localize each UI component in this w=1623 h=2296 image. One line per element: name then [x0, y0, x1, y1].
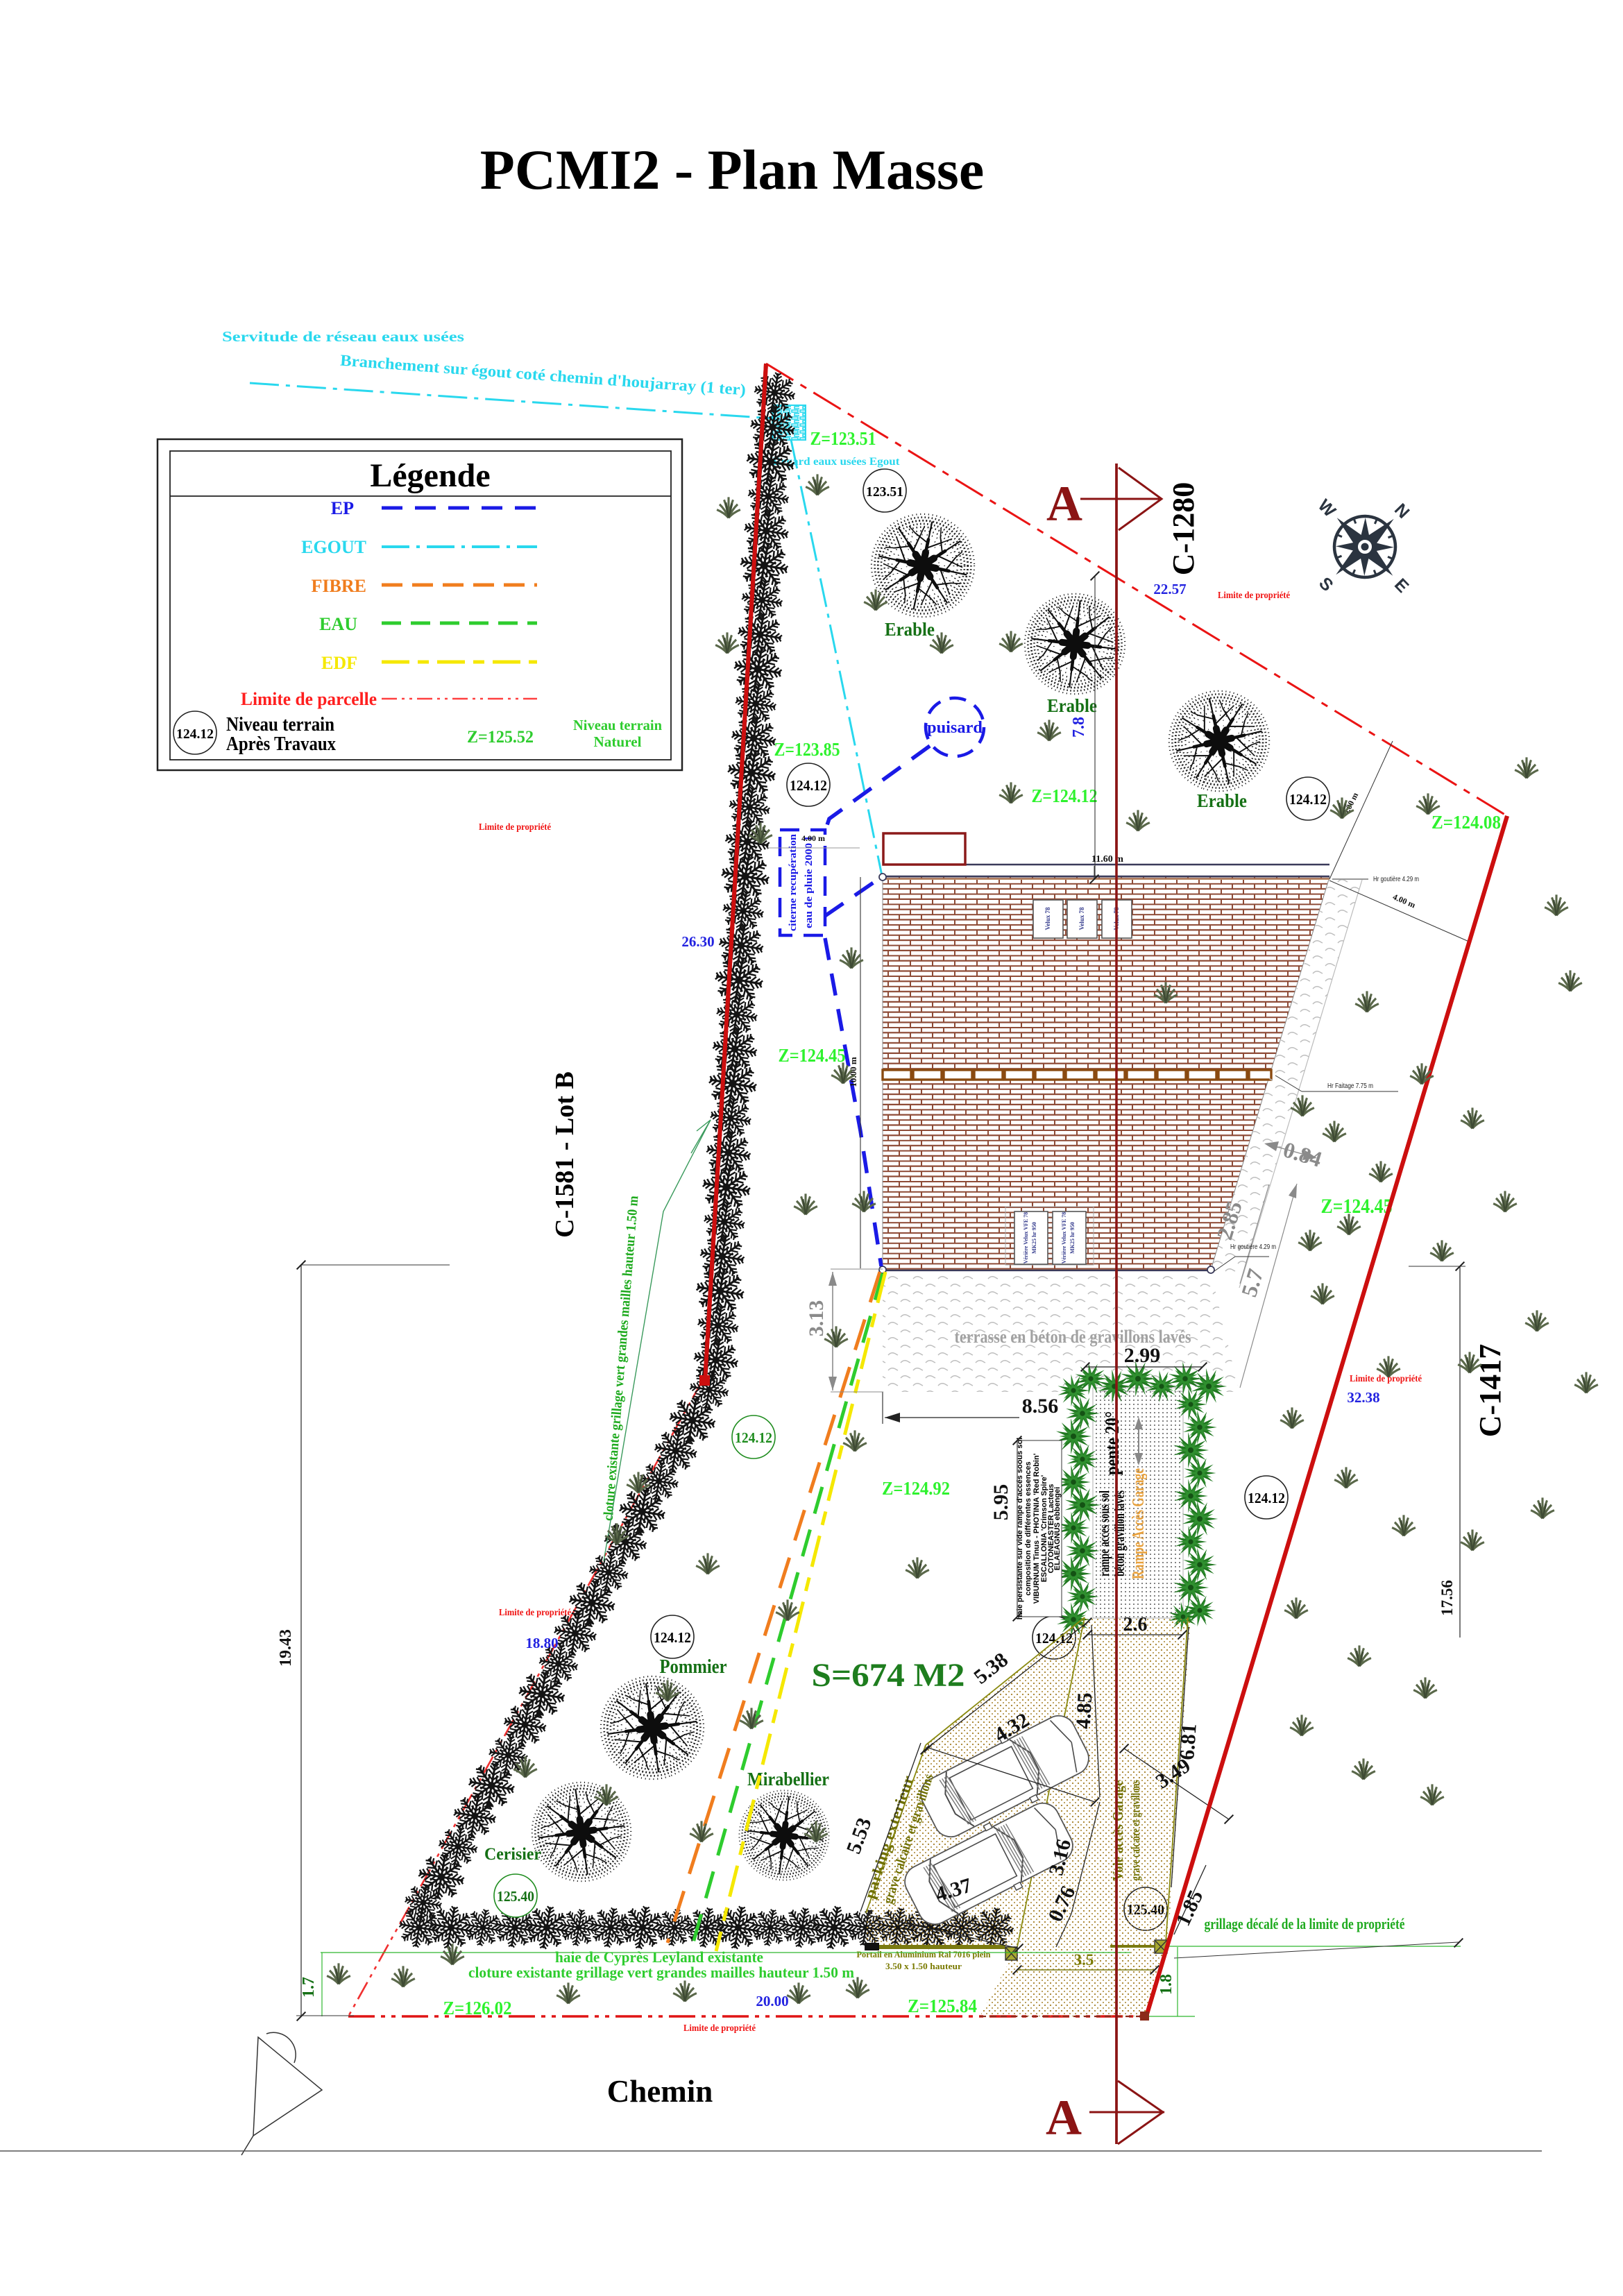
svg-text:Après Travaux: Après Travaux	[226, 733, 336, 755]
svg-text:MK25 hr 950: MK25 hr 950	[1031, 1222, 1037, 1254]
svg-text:Naturel: Naturel	[594, 733, 642, 750]
svg-text:C-1280: C-1280	[1166, 482, 1200, 575]
svg-text:Limite de propriété: Limite de propriété	[499, 1608, 571, 1618]
svg-text:Limite de parcelle: Limite de parcelle	[241, 689, 377, 709]
svg-text:MK25 hr 950: MK25 hr 950	[1069, 1222, 1076, 1254]
svg-text:124.12: 124.12	[176, 726, 214, 742]
svg-text:Z=124.45: Z=124.45	[779, 1045, 846, 1066]
svg-text:1.7: 1.7	[300, 1977, 318, 1998]
svg-text:124.12: 124.12	[735, 1429, 772, 1446]
svg-text:C-1581 - Lot B: C-1581 - Lot B	[550, 1071, 579, 1238]
svg-text:22.57: 22.57	[1153, 581, 1186, 597]
svg-text:Légende: Légende	[370, 457, 490, 494]
svg-text:A: A	[1046, 2090, 1082, 2145]
svg-text:124.12: 124.12	[1289, 791, 1327, 808]
svg-text:Z=125.84: Z=125.84	[908, 1996, 977, 2016]
svg-text:2.6: 2.6	[1123, 1614, 1148, 1635]
svg-text:grillage décalé de la limite d: grillage décalé de la limite de propriét…	[1205, 1915, 1405, 1932]
svg-text:A: A	[1046, 476, 1082, 532]
svg-text:Servitude de réseau eaux usées: Servitude de réseau eaux usées	[222, 328, 464, 345]
svg-text:FIBRE: FIBRE	[312, 576, 366, 596]
svg-text:ELAEAGNUS ebbengei: ELAEAGNUS ebbengei	[1053, 1487, 1062, 1570]
svg-text:2.99: 2.99	[1124, 1344, 1161, 1367]
svg-text:EAU: EAU	[319, 614, 357, 634]
svg-text:18.80: 18.80	[525, 1635, 558, 1651]
svg-text:Z=124.45: Z=124.45	[1321, 1195, 1393, 1218]
svg-text:Hr Faitage 7.75 m: Hr Faitage 7.75 m	[1327, 1082, 1373, 1090]
svg-text:Portail en Aluminium Ral 7016: Portail en Aluminium Ral 7016 plein	[857, 1949, 992, 1959]
svg-text:Limite de propriété: Limite de propriété	[1218, 590, 1290, 601]
svg-text:S=674 M2: S=674 M2	[812, 1657, 965, 1694]
svg-text:Hr goutière 4.29 m: Hr goutière 4.29 m	[1230, 1243, 1276, 1251]
svg-text:Z=126.02: Z=126.02	[443, 1998, 512, 2018]
svg-text:Vérière Velux VFE 78: Vérière Velux VFE 78	[1023, 1212, 1029, 1264]
svg-text:123.51: 123.51	[866, 484, 903, 500]
svg-text:pente 20°: pente 20°	[1102, 1411, 1123, 1475]
svg-text:EGOUT: EGOUT	[301, 537, 366, 557]
svg-text:Chemin: Chemin	[607, 2074, 713, 2109]
svg-text:Z=124.92: Z=124.92	[882, 1478, 950, 1499]
svg-text:Limite de propriété: Limite de propriété	[683, 2023, 756, 2034]
svg-text:composition de différentes ess: composition de différentes essences	[1024, 1461, 1033, 1595]
svg-text:Velux 78: Velux 78	[1078, 907, 1085, 930]
svg-text:Z=125.52: Z=125.52	[467, 728, 534, 747]
svg-text:Niveau terrain: Niveau terrain	[226, 714, 334, 735]
svg-text:EDF: EDF	[321, 653, 357, 673]
svg-text:Z=123.51: Z=123.51	[810, 428, 876, 449]
svg-text:5.95: 5.95	[989, 1484, 1012, 1521]
svg-text:4.00 m: 4.00 m	[801, 833, 825, 843]
svg-text:Velux 78: Velux 78	[1044, 907, 1051, 930]
svg-text:3.5: 3.5	[1074, 1951, 1094, 1968]
svg-text:17.56: 17.56	[1438, 1580, 1456, 1616]
svg-text:Niveau terrain: Niveau terrain	[573, 717, 662, 733]
svg-text:20.00: 20.00	[756, 1993, 788, 2009]
svg-text:11.60 m: 11.60 m	[1091, 854, 1123, 865]
svg-text:rampe acces sous sol: rampe acces sous sol	[1097, 1490, 1112, 1576]
svg-text:Z=124.08: Z=124.08	[1431, 812, 1501, 833]
svg-text:19.43: 19.43	[277, 1629, 295, 1667]
svg-text:124.12: 124.12	[790, 777, 827, 794]
svg-text:32.38: 32.38	[1347, 1389, 1379, 1406]
svg-text:puisard: puisard	[927, 719, 983, 737]
svg-text:26.30: 26.30	[681, 933, 714, 950]
svg-text:Vérière Velux VFE 78: Vérière Velux VFE 78	[1061, 1212, 1067, 1264]
svg-text:3.50 x 1.50 hauteur: 3.50 x 1.50 hauteur	[885, 1961, 962, 1971]
svg-text:eau de pluie 2000 l: eau de pluie 2000 l	[804, 837, 815, 928]
svg-text:3.13: 3.13	[805, 1300, 828, 1337]
svg-text:Z=124.12: Z=124.12	[1032, 785, 1098, 806]
svg-text:4.85: 4.85	[1072, 1692, 1097, 1729]
svg-text:Z=123.85: Z=123.85	[774, 739, 840, 760]
svg-text:124.12: 124.12	[654, 1629, 691, 1646]
svg-text:C-1417: C-1417	[1473, 1344, 1507, 1437]
svg-text:Voie accès Garage: Voie accès Garage	[1110, 1780, 1126, 1881]
svg-text:Erable: Erable	[1197, 790, 1247, 811]
svg-text:7.8: 7.8	[1070, 717, 1088, 738]
svg-text:124.12: 124.12	[1248, 1490, 1285, 1506]
svg-text:EP: EP	[331, 498, 354, 518]
svg-text:Limite de propriété: Limite de propriété	[479, 822, 551, 833]
svg-text:PCMI2 - Plan Masse: PCMI2 - Plan Masse	[480, 138, 985, 201]
svg-text:Cerisier: Cerisier	[484, 1845, 541, 1864]
svg-text:béton gravillon lavés: béton gravillon lavés	[1112, 1490, 1128, 1576]
svg-text:Pommier: Pommier	[660, 1656, 727, 1678]
svg-text:Rampe Accès Garage: Rampe Accès Garage	[1130, 1468, 1148, 1579]
svg-text:8.56: 8.56	[1022, 1395, 1059, 1418]
svg-text:125.40: 125.40	[497, 1888, 534, 1905]
svg-text:cloture existante grillage ver: cloture existante grillage vert grandes …	[468, 1964, 854, 1981]
svg-text:Erable: Erable	[1047, 695, 1097, 716]
svg-text:grave calcaire et gravillons: grave calcaire et gravillons	[1129, 1780, 1142, 1880]
svg-text:Hr goutière 4.29 m: Hr goutière 4.29 m	[1373, 876, 1419, 883]
svg-text:Erable: Erable	[885, 619, 935, 640]
